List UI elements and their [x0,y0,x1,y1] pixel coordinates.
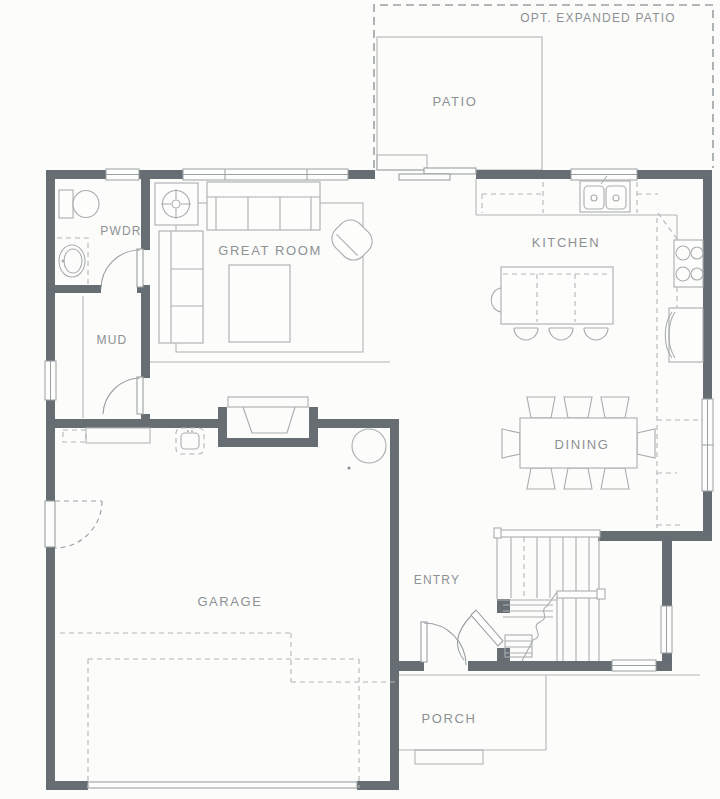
label-entry: ENTRY [414,573,460,587]
sofa [207,182,320,230]
great-room-furniture [150,182,390,362]
label-kitchen: KITCHEN [532,235,600,250]
walls [46,170,712,790]
stair-break-line [522,592,557,661]
island-sink [491,288,501,312]
range-icon [674,240,703,287]
doors [45,168,503,788]
label-mud: MUD [97,333,128,347]
bar-stools [514,328,608,340]
counter-edge [476,179,677,240]
refrigerator-icon [665,308,703,362]
window-stair-right [661,606,672,653]
pwdr-fixtures [57,190,99,288]
utility-sink-icon [176,428,204,454]
garage-overhead-door [88,782,357,788]
garage-opt-side-door [45,501,102,548]
label-patio: PATIO [432,94,477,109]
floor-plan: OPT. EXPANDED PATIO PATIO PWDR GREAT ROO… [0,0,720,799]
stairs-icon [494,528,605,661]
sink-icon [57,238,88,288]
stair-rail-top [497,530,600,537]
label-opt-expanded-patio: OPT. EXPANDED PATIO [520,11,676,25]
ceiling-fixture-icon [155,183,198,225]
coffee-table [229,265,290,342]
window-bottom [612,660,656,671]
window-kitchen-sink [571,169,637,180]
label-porch: PORCH [422,711,477,726]
window-pwdr [106,169,139,180]
window-great-room [183,169,348,180]
mud-step [86,428,150,443]
double-sink-icon [580,176,630,212]
label-great-room: GREAT ROOM [218,243,322,258]
front-entry-door [421,622,466,665]
kitchen-island [491,267,613,340]
stair-rail-mid [557,591,603,598]
label-garage: GARAGE [197,594,262,609]
armchair [327,215,378,266]
water-heater-icon [347,429,386,470]
label-dining: DINING [554,437,609,452]
opt-storage-dashed [60,633,398,788]
fireplace-icon [218,397,318,447]
chaise-sofa [159,231,203,343]
window-mud-left [45,361,56,400]
mud-door [103,377,143,414]
label-pwdr: PWDR [100,224,141,238]
opt-expanded-patio-outline [374,5,713,168]
patio-step [377,155,427,170]
pwdr-door [101,249,143,289]
porch-step [415,750,483,764]
window-dining-right [702,399,713,491]
toilet-icon [59,190,99,218]
